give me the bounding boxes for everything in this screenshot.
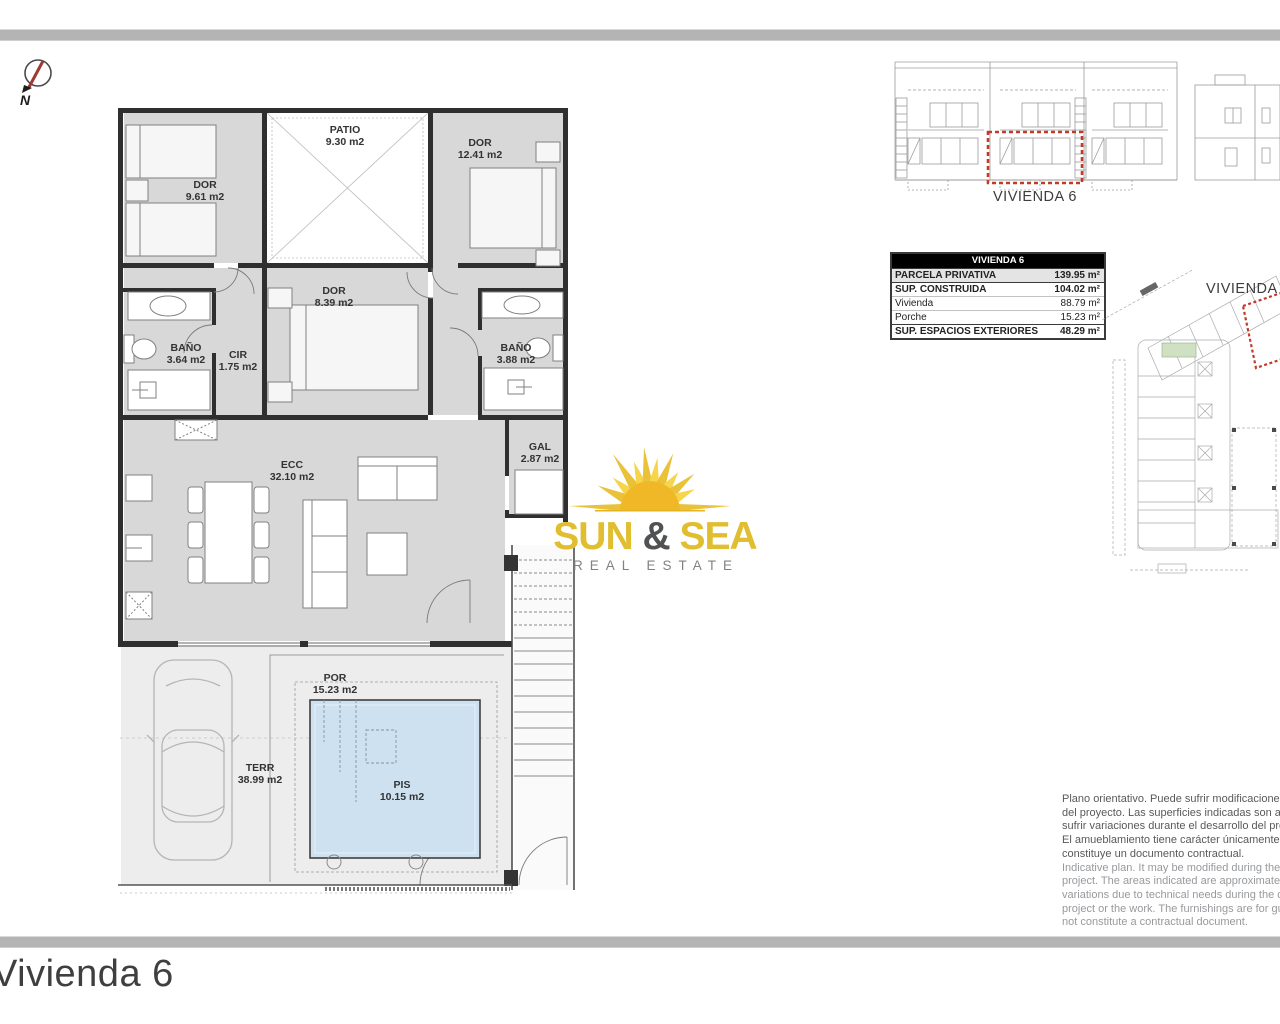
svg-text:8.39 m2: 8.39 m2 xyxy=(315,297,354,309)
room-label-por: POR xyxy=(324,672,347,684)
room-label-dor3: DOR xyxy=(322,285,346,297)
table-row: Vivienda88.79 m² xyxy=(892,296,1104,310)
room-label-terr: TERR xyxy=(246,762,275,774)
room-label-pis: PIS xyxy=(394,779,411,791)
room-label-ecc: ECC xyxy=(281,459,304,471)
top-divider-bar xyxy=(0,29,1280,41)
svg-text:10.15 m2: 10.15 m2 xyxy=(380,791,425,803)
logo-ampersand: & xyxy=(642,515,669,558)
gallery-appliance xyxy=(515,470,563,514)
site-plan-unit-label: VIVIENDA 6 xyxy=(1206,281,1280,297)
room-label-cir: CIR xyxy=(229,349,248,361)
svg-text:15.23 m2: 15.23 m2 xyxy=(313,684,358,696)
area-summary-table: VIVIENDA 6 PARCELA PRIVATIVA139.95 m² SU… xyxy=(890,252,1106,340)
courtyard-columns xyxy=(1232,428,1276,546)
room-label-bano2: BAÑO xyxy=(501,341,532,354)
logo-subtitle: REAL ESTATE xyxy=(556,558,756,573)
svg-text:9.30 m2: 9.30 m2 xyxy=(326,136,365,148)
north-label: N xyxy=(20,92,31,108)
svg-text:32.10 m2: 32.10 m2 xyxy=(270,471,315,483)
sheet-title: Vivienda 6 xyxy=(0,953,174,996)
site-plan-drawing xyxy=(1100,270,1280,625)
logo-wordmark: SUN & SEA xyxy=(552,515,758,559)
site-highlight-box xyxy=(1243,293,1280,368)
svg-text:38.99 m2: 38.99 m2 xyxy=(238,774,283,786)
table-header: VIVIENDA 6 xyxy=(892,254,1104,268)
sun-logo-icon xyxy=(565,445,735,523)
svg-text:3.64 m2: 3.64 m2 xyxy=(167,354,206,366)
elevation-unit-label: VIVIENDA 6 xyxy=(975,189,1095,205)
room-label-dor2: DOR xyxy=(468,137,492,149)
svg-text:12.41 m2: 12.41 m2 xyxy=(458,149,503,161)
elevation-units xyxy=(896,90,1168,190)
room-label-patio: PATIO xyxy=(330,124,361,136)
room-label-gal: GAL xyxy=(529,441,552,453)
bottom-divider-bar xyxy=(0,936,1280,948)
svg-text:2.87 m2: 2.87 m2 xyxy=(521,453,560,465)
unit-highlight-box xyxy=(988,132,1082,183)
plan-sheet: Vivienda 6 N xyxy=(0,0,1280,1024)
svg-text:3.88 m2: 3.88 m2 xyxy=(497,354,536,366)
table-row: Porche15.23 m² xyxy=(892,310,1104,324)
disclaimer-text: Plano orientativo. Puede sufrir modifica… xyxy=(1062,793,1280,930)
table-row: SUP. ESPACIOS EXTERIORES48.29 m² xyxy=(892,324,1104,338)
svg-text:1.75 m2: 1.75 m2 xyxy=(219,361,258,373)
elevation-right-building xyxy=(1195,75,1280,180)
table-row: PARCELA PRIVATIVA139.95 m² xyxy=(892,268,1104,282)
svg-text:9.61 m2: 9.61 m2 xyxy=(186,191,225,203)
living-glazing xyxy=(178,641,430,647)
floor-plan-drawing: DOR 9.61 m2 PATIO 9.30 m2 DOR 12.41 m2 D… xyxy=(110,90,590,920)
north-arrow-icon: N xyxy=(12,53,74,115)
room-label-bano1: BAÑO xyxy=(171,341,202,354)
room-label-dor1: DOR xyxy=(193,179,217,191)
table-row: SUP. CONSTRUIDA104.02 m² xyxy=(892,282,1104,296)
dining-set xyxy=(188,482,269,583)
